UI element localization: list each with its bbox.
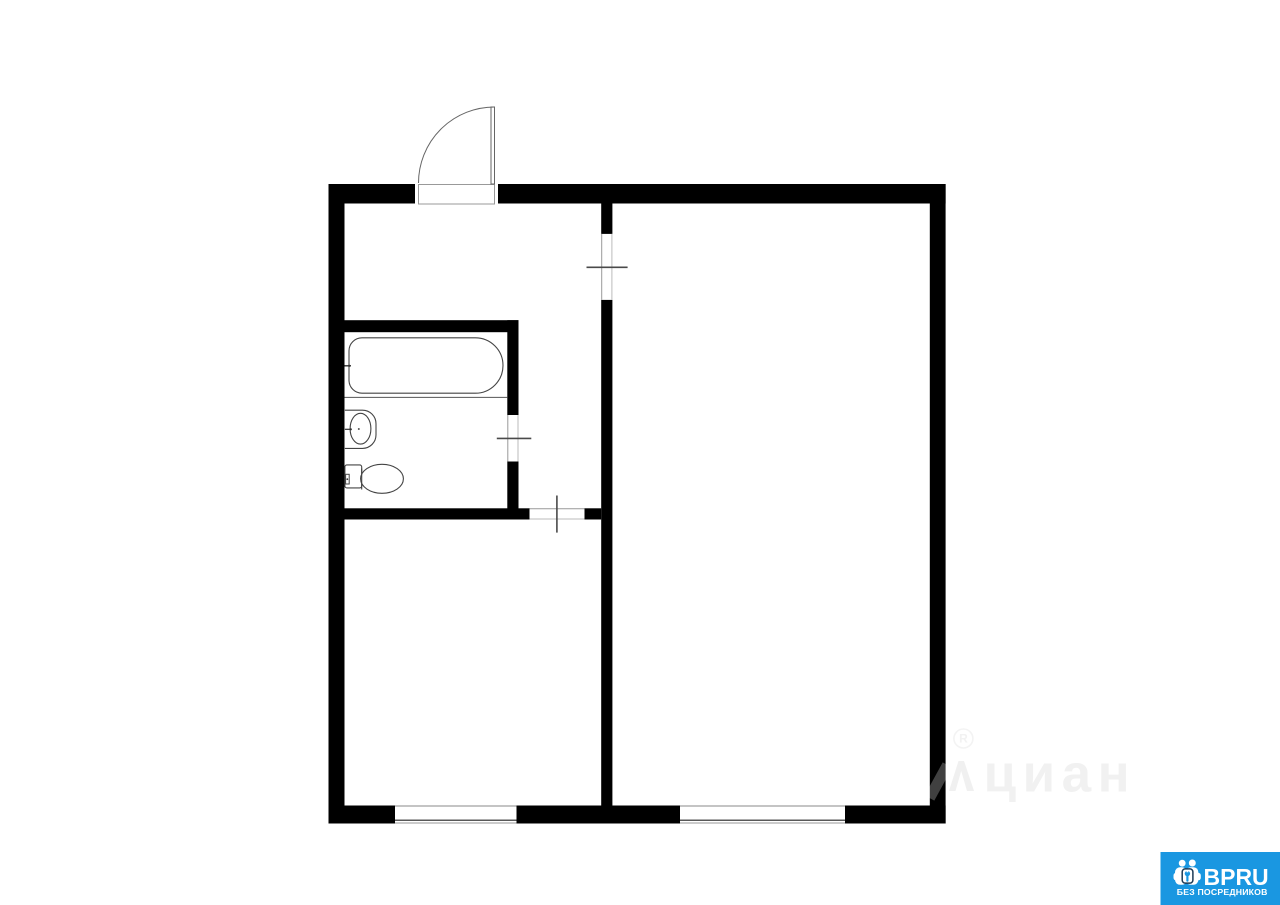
svg-text:БЕЗ ПОСРЕДНИКОВ: БЕЗ ПОСРЕДНИКОВ	[1177, 887, 1268, 897]
svg-text:циан: циан	[984, 745, 1137, 804]
svg-text:BPRU: BPRU	[1204, 864, 1269, 890]
svg-text:R: R	[959, 732, 968, 746]
